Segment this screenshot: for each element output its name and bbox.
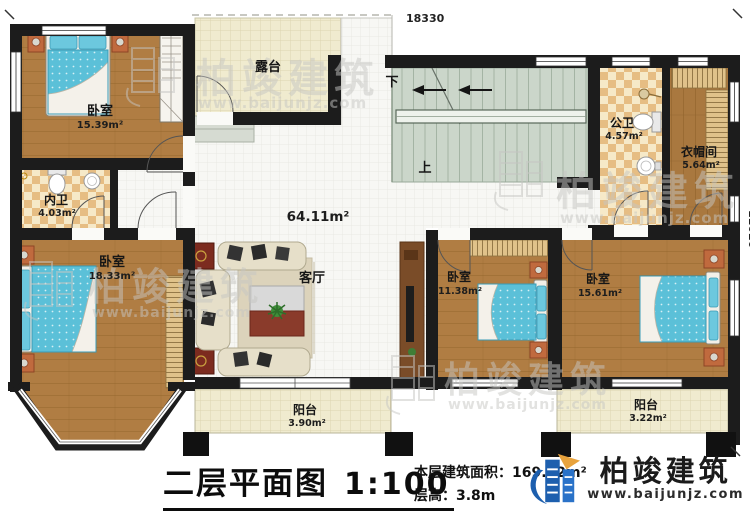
room-label-bedroom-bm: 卧室 [447,269,471,284]
watermark-url: www.baijunjz.com [448,397,607,413]
brand-logo-icon [523,448,581,510]
hall-area-label: 64.11m² [287,209,350,225]
room-label-living: 客厅 [299,270,325,286]
room-area-bedroom-br: 15.61m² [578,288,622,299]
corner-tick [5,10,14,19]
stairs-up-label: 上 [418,161,431,176]
tv-cabinet [400,242,424,378]
sink-icon [84,173,100,189]
room-label-bath-inner: 内卫 [44,192,68,207]
corner-tick [733,9,742,18]
stairs-down-label: 下 [385,75,398,90]
column [385,432,413,456]
drawing-title: 二层平面图1:100 [163,458,454,511]
brand-logo-block: 柏竣建筑 www.baijunjz.com [523,448,744,510]
drawing-title-text: 二层平面图 [163,466,328,502]
sliding-door [240,378,350,388]
room-area-balcony-right: 3.22m² [629,413,667,424]
window [678,57,708,66]
window [536,57,586,66]
watermark-url: www.baijunjz.com [198,94,367,112]
window [730,280,739,336]
dimension-top: 18330 [406,12,445,25]
room-area-bedroom-tl: 15.39m² [77,120,123,131]
watermark-text: 柏竣建筑 [444,360,612,401]
window [42,26,106,35]
pillow [227,245,244,262]
brand-name: 柏竣建筑 [587,456,744,486]
room-area-bath-public: 4.57m² [605,131,643,142]
room-area-bath-inner: 4.03m² [38,208,76,219]
window [612,57,650,66]
room-area-balcony-left: 3.90m² [288,418,326,429]
plant-icon [408,348,416,356]
title-block-footer: 二层平面图1:100 本层建筑面积：169.12m² 层高：3.8m 柏竣建筑 … [0,456,750,513]
bed [478,280,547,344]
pillow [251,244,267,260]
room-label-balcony-right: 阳台 [634,397,658,412]
toilet-icon [633,112,661,132]
room-label-bedroom-bl: 卧室 [99,254,125,270]
room-area-bedroom-bl: 18.33m² [89,271,135,282]
brand-url: www.baijunjz.com [587,487,744,502]
room-label-bedroom-br: 卧室 [586,271,610,286]
wardrobe [160,30,183,122]
wardrobe [672,68,726,88]
window [730,82,739,122]
toilet-icon [48,167,66,194]
floor-plan-svg: 18330 11020 柏竣建筑 www.baijunjz.com 柏竣建筑 w… [0,0,750,460]
room-label-terrace: 露台 [255,59,281,75]
pillow [275,246,290,261]
pillow [233,351,249,367]
floor-plan-page: 18330 11020 柏竣建筑 www.baijunjz.com 柏竣建筑 w… [0,0,750,513]
tv-icon [406,286,414,342]
room-area-cloakroom: 5.64m² [682,160,720,171]
room-label-bedroom-tl: 卧室 [87,103,113,119]
bed [640,272,720,344]
column [183,432,209,456]
room-label-cloakroom: 衣帽间 [681,144,717,159]
room-area-bedroom-bm: 11.38m² [438,286,482,297]
wardrobe [470,240,548,256]
room-label-bath-public: 公卫 [610,116,634,130]
dimension-right: 11020 [746,210,750,249]
terrace-step [194,129,254,142]
watermark-url: www.baijunjz.com [92,305,251,321]
window [11,52,21,112]
window [612,379,682,387]
room-label-balcony-left: 阳台 [293,402,317,417]
watermark-url: www.baijunjz.com [560,209,729,227]
